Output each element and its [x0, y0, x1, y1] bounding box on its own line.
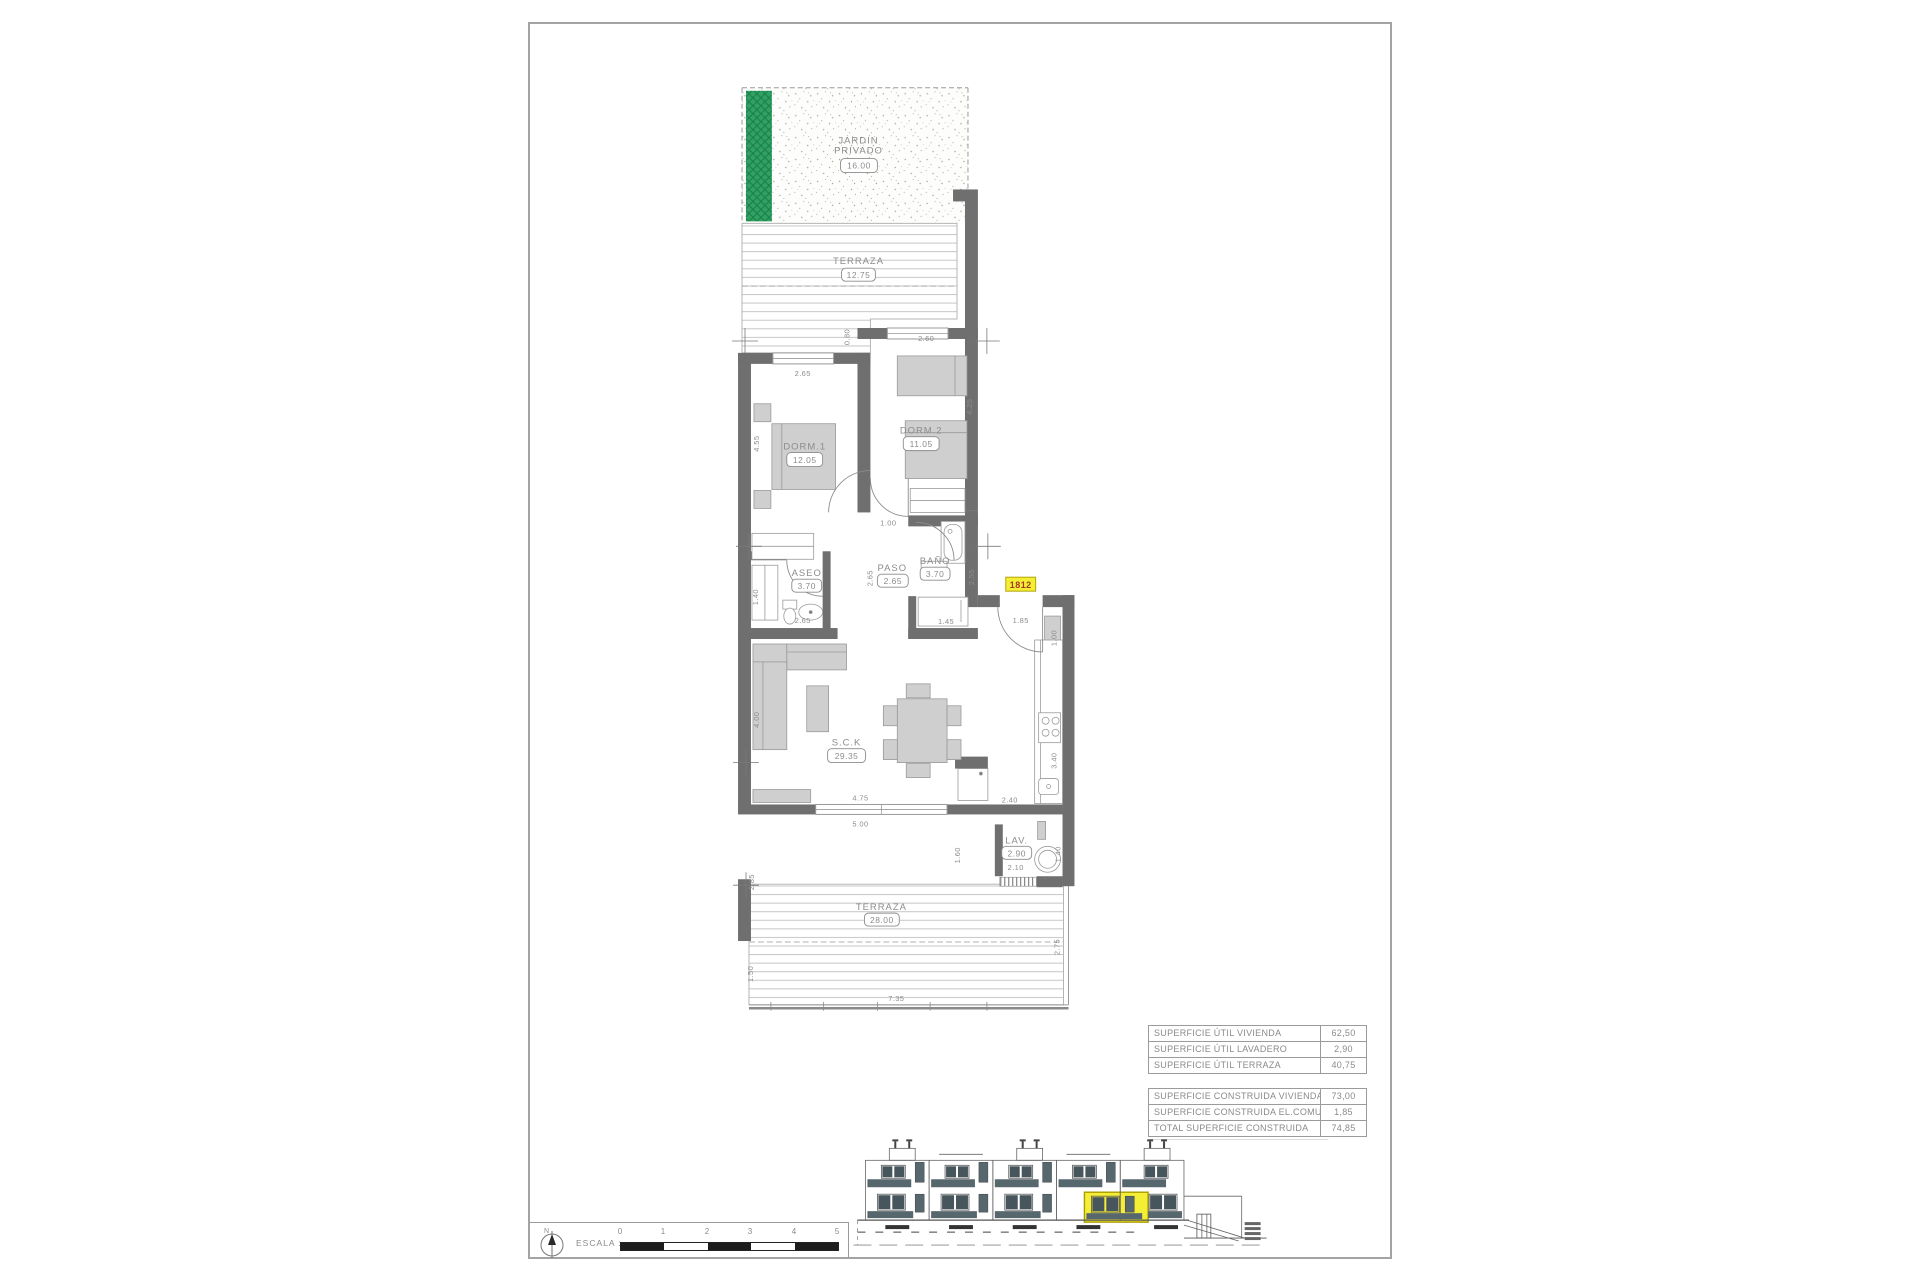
dim-terraza-right: 0.80: [843, 329, 852, 345]
table-cell-label: TOTAL SUPERFICIE CONSTRUIDA: [1149, 1121, 1320, 1136]
dim-bano-bottom: 1.45: [938, 617, 954, 626]
dim-aseo-bottom: 2.65: [795, 616, 811, 625]
dim-terraza2-l1: 2.85: [747, 874, 756, 890]
dim-sck-left: 4.00: [752, 712, 761, 728]
table-row: SUPERFICIE ÚTIL TERRAZA 40,75: [1149, 1058, 1366, 1073]
paso-area: 2.65: [884, 576, 902, 586]
dorm1-nightstand: [754, 404, 771, 422]
chair: [883, 740, 897, 760]
terraza-top-label: TERRAZA: [833, 256, 884, 267]
table-cell-label: SUPERFICIE ÚTIL LAVADERO: [1149, 1042, 1320, 1057]
coffee-table: [807, 686, 829, 732]
table-cell-label: SUPERFICIE CONSTRUIDA EL.COMUNES: [1149, 1105, 1320, 1120]
table-cell-value: 74,85: [1320, 1121, 1366, 1136]
scale-tick: 3: [748, 1227, 752, 1236]
unit-tag-number: 1812: [1010, 580, 1032, 590]
table-cell-value: 73,00: [1320, 1089, 1366, 1104]
superficie-util-table: SUPERFICIE ÚTIL VIVIENDA 62,50 SUPERFICI…: [1148, 1025, 1367, 1074]
dim-window-inner: 4.75: [852, 793, 868, 802]
kitchen-peninsula: [958, 769, 988, 801]
table-cell-label: SUPERFICIE ÚTIL VIVIENDA: [1149, 1026, 1320, 1041]
drawing-sheet: JARDIN PRIVADO 16.00 TERRAZA 12.75 TERRA…: [528, 22, 1392, 1259]
scale-segment: [708, 1243, 751, 1250]
garden-area-value: 16.00: [847, 161, 871, 171]
dim-entry: 1.85: [1013, 616, 1029, 625]
table-row: SUPERFICIE ÚTIL VIVIENDA 62,50: [1149, 1026, 1366, 1042]
dorm1-nightstand: [754, 490, 771, 508]
dim-lav-right: 1.40: [1054, 846, 1063, 862]
bano-area: 3.70: [926, 569, 944, 579]
dorm1-area: 12.05: [793, 455, 817, 465]
terraza-top-area-value: 12.75: [847, 270, 871, 280]
scale-segment: [795, 1243, 838, 1250]
chair: [906, 684, 930, 698]
scale-segment: [751, 1243, 794, 1250]
dim-dorm1-width: 2.65: [795, 369, 811, 378]
tv-sideboard: [753, 790, 811, 803]
dim-kitchen-v: 3.40: [1050, 753, 1059, 769]
sck-label: S.C.K: [832, 738, 862, 749]
terraza-bottom-label: TERRAZA: [856, 902, 907, 913]
dorm1-label: DORM.1: [783, 442, 826, 453]
chair: [906, 764, 930, 778]
terraza-bottom-area-value: 28.00: [870, 915, 894, 925]
table-cell-value: 1,85: [1320, 1105, 1366, 1120]
chair: [947, 706, 961, 726]
superficie-construida-table: SUPERFICIE CONSTRUIDA VIVIENDA 73,00 SUP…: [1148, 1088, 1367, 1137]
table-row: SUPERFICIE CONSTRUIDA VIVIENDA 73,00: [1149, 1089, 1366, 1105]
scale-tick: 2: [705, 1227, 709, 1236]
dim-entry-v: 1.00: [1050, 630, 1059, 646]
dim-terraza2-r2: 2.75: [1053, 939, 1062, 955]
dining-table: [897, 699, 947, 763]
dim-dorm1-height: 4.55: [752, 436, 761, 452]
scale-tick: 4: [792, 1227, 796, 1236]
chair: [947, 740, 961, 760]
dim-lav-bottom: 2.10: [1008, 863, 1024, 872]
kitchen-sink: [1039, 779, 1059, 795]
table-cell-value: 62,50: [1320, 1026, 1366, 1041]
scale-segment: [664, 1243, 707, 1250]
scale-tick: 5: [835, 1227, 839, 1236]
dorm2-door-arc: [870, 479, 908, 517]
table-cell-label: SUPERFICIE ÚTIL TERRAZA: [1149, 1058, 1320, 1073]
scale-tick: 1: [661, 1227, 665, 1236]
dim-hall: 1.00: [880, 518, 896, 527]
table-row: TOTAL SUPERFICIE CONSTRUIDA 74,85: [1149, 1121, 1366, 1136]
lav-shelf: [1038, 821, 1046, 839]
dim-bano-right: 2.55: [967, 569, 976, 585]
scale-tick: 0: [618, 1227, 622, 1236]
scale-ticks: 0 1 2 3 4 5: [530, 1227, 848, 1237]
dim-terraza2-l2: 1.50: [746, 966, 755, 982]
scale-box: N ESCALA : 0 1 2 3 4 5: [530, 1222, 849, 1257]
dim-terraza2-r1: 1.60: [953, 847, 962, 863]
sofa-corner: [753, 644, 787, 662]
sofa-left: [753, 662, 787, 750]
lav-area: 2.90: [1008, 848, 1026, 858]
table-cell-label: SUPERFICIE CONSTRUIDA VIVIENDA: [1149, 1089, 1320, 1104]
aseo-label: ASEO: [792, 568, 822, 579]
dim-aseo-left: 1.40: [751, 589, 760, 605]
garden-label-2: PRIVADO: [834, 146, 883, 157]
dim-dorm2-width: 2.60: [918, 334, 934, 343]
sofa-top: [787, 644, 847, 670]
vent-grille: [1000, 877, 1037, 886]
terraza-bottom-deck: TERRAZA 28.00: [749, 884, 1069, 1011]
sck-area: 29.35: [835, 751, 859, 761]
table-cell-value: 40,75: [1320, 1058, 1366, 1073]
dim-kitchen: 2.40: [1002, 795, 1018, 804]
dorm2-label: DORM.2: [900, 426, 943, 437]
room-labels: DORM.1 12.05 DORM.2 11.05 ASEO 3.70 PASO…: [783, 426, 1031, 860]
lav-label: LAV.: [1005, 835, 1028, 846]
paso-label: PASO: [878, 563, 908, 574]
scale-bar: [620, 1242, 839, 1251]
table-cell-value: 2,90: [1320, 1042, 1366, 1057]
table-row: SUPERFICIE ÚTIL LAVADERO 2,90: [1149, 1042, 1366, 1058]
dorm2-area: 11.05: [910, 439, 933, 449]
escala-label: ESCALA :: [576, 1238, 622, 1248]
chair: [883, 706, 897, 726]
dim-dorm2-height: 4.25: [965, 399, 974, 415]
table-row: SUPERFICIE CONSTRUIDA EL.COMUNES 1,85: [1149, 1105, 1366, 1121]
dim-window-outer: 5.00: [852, 819, 868, 828]
aseo-area: 3.70: [797, 581, 815, 591]
building-elevation: [853, 1139, 1328, 1245]
scale-segment: [621, 1243, 664, 1250]
garden-hedge-strip: [746, 91, 772, 222]
bano-label: BAÑO: [920, 556, 951, 567]
unit-tag: 1812: [1006, 577, 1036, 591]
dim-terraza2-bottom: 7.35: [888, 994, 904, 1003]
dim-paso-v: 2.65: [865, 570, 874, 586]
private-garden: JARDIN PRIVADO 16.00: [742, 88, 968, 224]
dorm2-bed: [897, 356, 967, 396]
